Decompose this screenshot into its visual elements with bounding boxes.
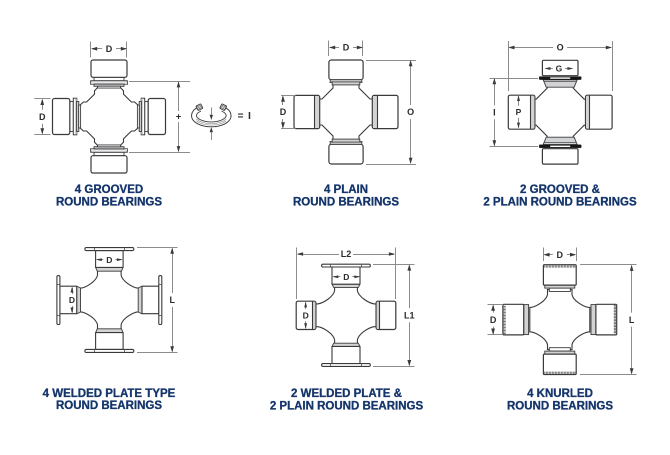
svg-text:ROUND BEARINGS: ROUND BEARINGS [293,197,399,209]
svg-text:D: D [69,295,75,305]
svg-text:I: I [493,108,496,118]
svg-text:D: D [490,315,497,325]
svg-text:G: G [556,64,563,74]
svg-text:D: D [343,272,349,282]
svg-text:4 KNURLED: 4 KNURLED [527,388,593,400]
svg-text:=: = [238,111,244,122]
svg-text:D: D [557,250,564,260]
svg-text:D: D [106,255,112,265]
svg-text:4 PLAIN: 4 PLAIN [324,184,368,196]
svg-text:2 GROOVED &: 2 GROOVED & [520,184,600,196]
svg-text:D: D [280,107,287,117]
svg-text:ROUND BEARINGS: ROUND BEARINGS [56,400,162,412]
svg-text:+: + [176,111,182,122]
svg-text:I: I [248,110,251,122]
svg-text:L: L [629,315,635,325]
svg-text:O: O [557,43,564,53]
svg-text:L2: L2 [341,249,352,259]
svg-text:2 PLAIN ROUND BEARINGS: 2 PLAIN ROUND BEARINGS [270,400,424,412]
svg-text:2 WELDED PLATE &: 2 WELDED PLATE & [291,388,402,400]
svg-text:P: P [516,107,522,117]
svg-text:2 PLAIN ROUND BEARINGS: 2 PLAIN ROUND BEARINGS [483,197,637,209]
svg-text:ROUND BEARINGS: ROUND BEARINGS [56,197,162,209]
svg-text:D: D [343,43,350,53]
svg-text:D: D [106,44,113,54]
svg-text:D: D [39,112,46,122]
svg-text:L: L [169,295,175,305]
svg-text:4 WELDED PLATE TYPE: 4 WELDED PLATE TYPE [43,388,176,400]
svg-text:L1: L1 [404,311,415,321]
svg-text:ROUND BEARINGS: ROUND BEARINGS [507,400,613,412]
svg-text:D: D [303,311,309,321]
svg-text:O: O [407,107,414,117]
svg-text:4 GROOVED: 4 GROOVED [75,184,143,196]
